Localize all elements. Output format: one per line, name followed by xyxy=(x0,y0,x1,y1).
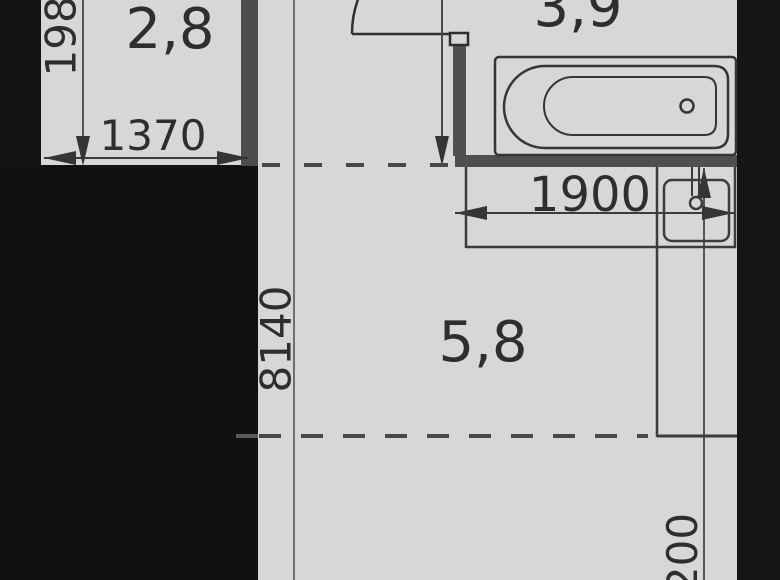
arrow-left-1900 xyxy=(455,206,487,220)
sink xyxy=(664,167,729,241)
door-arc xyxy=(352,0,361,34)
room-area-bathroom: 3,9 xyxy=(508,0,648,36)
door-jamb xyxy=(450,33,468,45)
bathtub-outer xyxy=(495,57,736,155)
faucet-head xyxy=(690,197,702,209)
door-swing xyxy=(352,0,451,34)
dim-text-200: 200 xyxy=(663,512,703,580)
arrow-down-entry xyxy=(435,136,449,166)
bathroom-bottom-wall xyxy=(455,155,737,167)
dim-text-1980: 1980 xyxy=(41,0,81,78)
outer-wall-right xyxy=(737,0,780,580)
dim-text-1900: 1900 xyxy=(520,172,660,218)
plan-geometry xyxy=(0,0,780,580)
room-area-kitchen: 5,8 xyxy=(413,315,553,371)
outer-wall-bottom-left xyxy=(0,165,258,580)
floor-plan: 2,8 3,9 5,8 1370 1900 1980 8140 200 xyxy=(0,0,780,580)
dim-text-8140: 8140 xyxy=(256,284,296,394)
room-area-hall: 2,8 xyxy=(100,2,240,58)
bathtub xyxy=(495,57,736,155)
arrow-left-1370 xyxy=(44,151,76,165)
hall-right-wall xyxy=(241,0,258,166)
bathtub-drain xyxy=(681,100,694,113)
outer-wall-top-left xyxy=(0,0,41,167)
dim-text-1370: 1370 xyxy=(83,116,223,156)
bathroom-left-wall xyxy=(453,44,466,156)
